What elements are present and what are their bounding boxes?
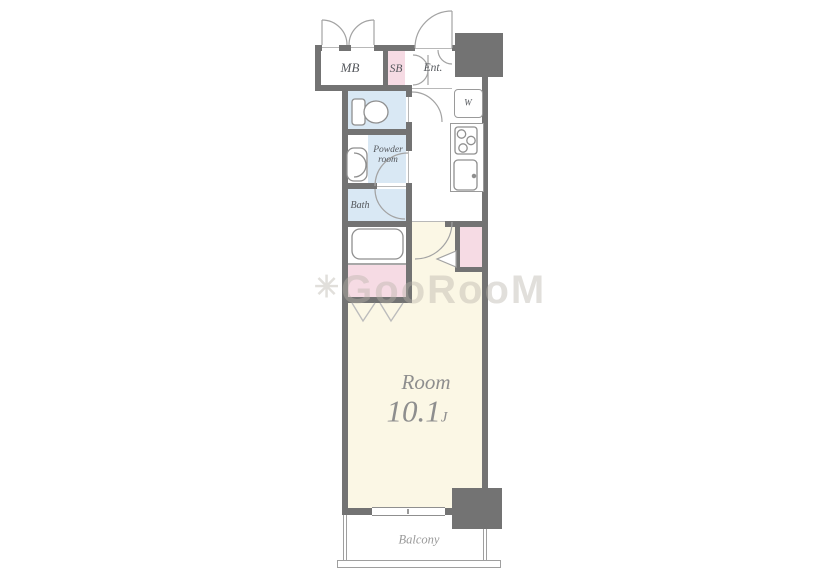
- balcony-label: Balcony: [399, 533, 440, 546]
- washer-pan-icon: [352, 229, 403, 259]
- stove-icon: [455, 127, 477, 154]
- mb-double-door-icon: [322, 20, 374, 45]
- watermark-text: GooRooM: [341, 268, 546, 312]
- powder-room-label: Powder room: [373, 146, 403, 166]
- room-area-unit: J: [441, 410, 448, 426]
- washbasin-icon: [347, 148, 367, 181]
- toilet-icon: [352, 99, 388, 125]
- entrance-door-icon: [415, 11, 452, 64]
- washer-label: W: [464, 98, 472, 107]
- sink-icon: [454, 160, 477, 190]
- room-door-icon: [415, 222, 456, 267]
- sb-label: SB: [390, 63, 403, 75]
- bath-label: Bath: [351, 201, 370, 212]
- mb-label: MB: [341, 61, 360, 75]
- room-area-label: 10.1J: [387, 396, 448, 429]
- watermark: ✳GooRooM: [314, 268, 546, 313]
- room-name-label: Room: [402, 371, 451, 393]
- room-area-value: 10.1: [387, 394, 441, 429]
- entrance-label: Ent.: [424, 62, 443, 74]
- powder-room-label-line2: room: [378, 155, 398, 165]
- toilet-door-arc: [412, 92, 442, 122]
- bath-door-arc: [375, 189, 405, 219]
- watermark-logo-icon: ✳: [314, 271, 339, 304]
- powder-room-label-line1: Powder: [373, 145, 403, 155]
- floorplan-canvas: MB SB Ent. W Powder room Bath Room 10.1J…: [0, 0, 819, 579]
